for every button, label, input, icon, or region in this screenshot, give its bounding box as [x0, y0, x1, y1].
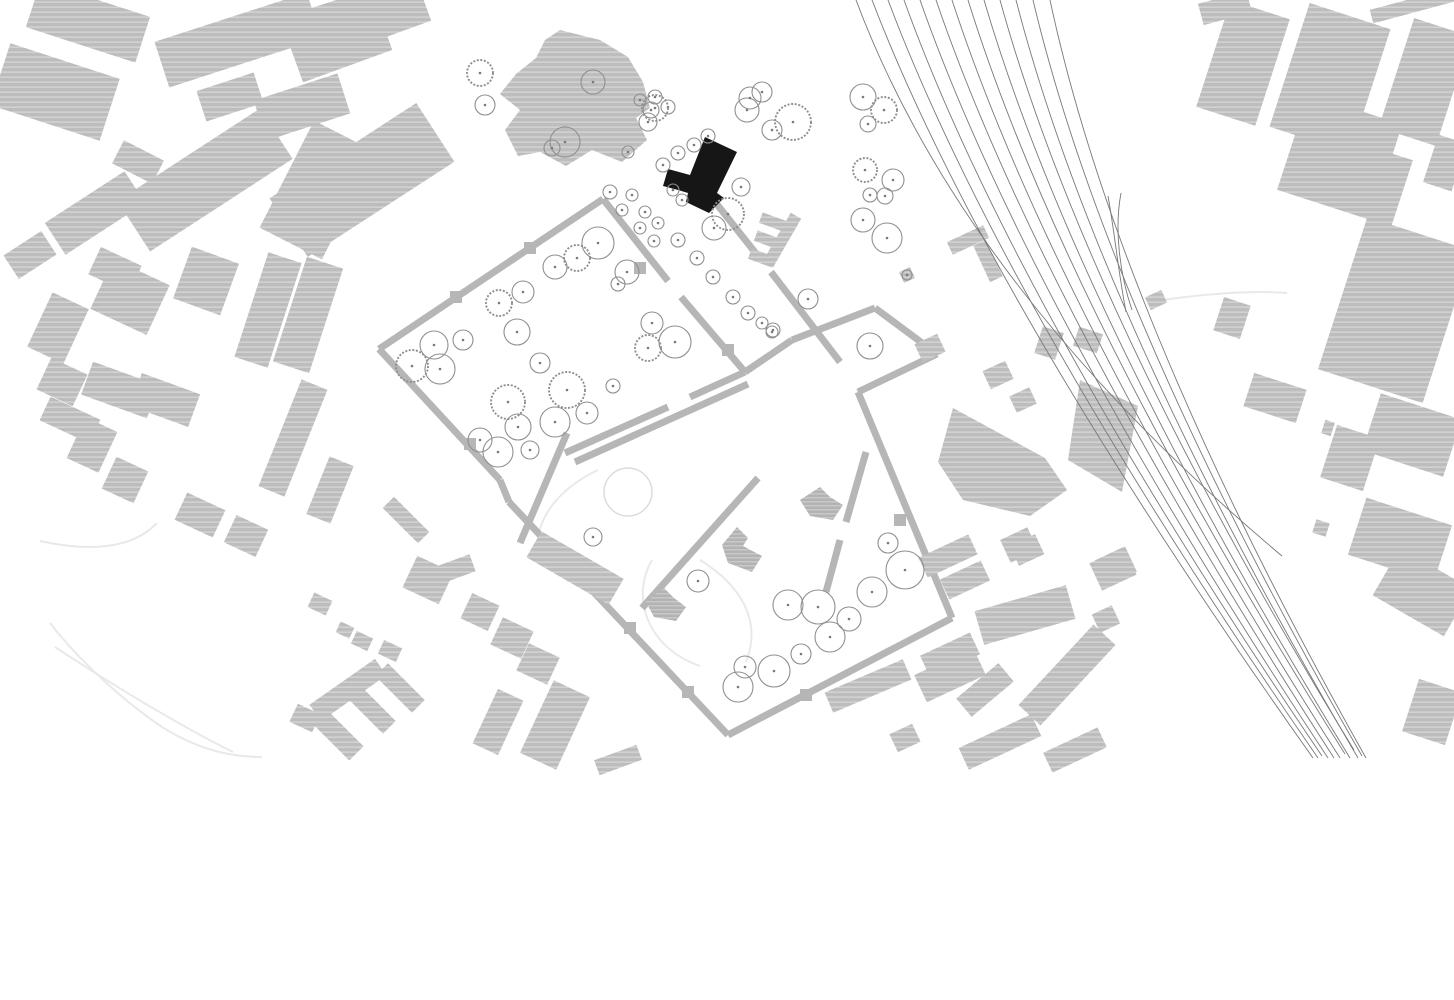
tree-trunk-dot	[507, 401, 510, 404]
tree-trunk-dot	[740, 186, 743, 189]
tree-trunk-dot	[586, 412, 589, 415]
tree-trunk-dot	[817, 606, 820, 609]
tree-trunk-dot	[862, 96, 865, 99]
wall-buttress	[894, 514, 906, 526]
tree-trunk-dot	[522, 291, 525, 294]
tree-trunk-dot	[411, 365, 414, 368]
tree-trunk-dot	[884, 195, 887, 198]
tree-trunk-dot	[609, 191, 612, 194]
tree-trunk-dot	[887, 542, 890, 545]
wall-buttress	[624, 622, 636, 634]
tree-trunk-dot	[554, 421, 557, 424]
tree-trunk-dot	[697, 580, 700, 583]
tree-trunk-dot	[592, 81, 595, 84]
tree-trunk-dot	[707, 135, 710, 138]
tree-trunk-dot	[479, 439, 482, 442]
tree-trunk-dot	[773, 670, 776, 673]
tree-trunk-dot	[654, 96, 657, 99]
tree-trunk-dot	[869, 345, 872, 348]
tree-trunk-dot	[864, 169, 867, 172]
tree-trunk-dot	[484, 104, 487, 107]
tree-trunk-dot	[677, 239, 680, 242]
tree-trunk-dot	[681, 199, 684, 202]
tree-trunk-dot	[529, 449, 532, 452]
tree-trunk-dot	[551, 147, 554, 150]
wall-buttress	[464, 438, 476, 450]
tree-trunk-dot	[564, 141, 567, 144]
tree-trunk-dot	[761, 322, 764, 325]
tree-trunk-dot	[497, 451, 500, 454]
tree-trunk-dot	[517, 426, 520, 429]
tree-trunk-dot	[771, 129, 774, 132]
site-plan-page	[0, 0, 1454, 1000]
tree-trunk-dot	[883, 109, 886, 112]
tree-trunk-dot	[612, 385, 615, 388]
tree-trunk-dot	[749, 97, 752, 100]
tree-trunk-dot	[906, 274, 909, 277]
tree-trunk-dot	[787, 604, 790, 607]
tree-trunk-dot	[871, 591, 874, 594]
tree-trunk-dot	[807, 298, 810, 301]
tree-trunk-dot	[479, 72, 482, 75]
tree-trunk-dot	[626, 271, 629, 274]
tree-trunk-dot	[693, 144, 696, 147]
tree-trunk-dot	[627, 151, 630, 154]
tree-trunk-dot	[433, 344, 436, 347]
tree-trunk-dot	[498, 302, 501, 305]
tree-trunk-dot	[647, 347, 650, 350]
tree-trunk-dot	[674, 341, 677, 344]
tree-trunk-dot	[621, 209, 624, 212]
tree-trunk-dot	[617, 283, 620, 286]
tree-trunk-dot	[727, 213, 730, 216]
wall-buttress	[800, 689, 812, 701]
wall-buttress	[524, 242, 536, 254]
tree-trunk-dot	[597, 242, 600, 245]
wall-buttress	[682, 686, 694, 698]
tree-trunk-dot	[644, 211, 647, 214]
site-plan-canvas	[0, 0, 1454, 1000]
tree-trunk-dot	[869, 194, 872, 197]
tree-trunk-dot	[672, 189, 675, 192]
tree-trunk-dot	[772, 329, 775, 332]
tree-trunk-dot	[744, 666, 747, 669]
wall-buttress	[450, 291, 462, 303]
tree-trunk-dot	[886, 237, 889, 240]
tree-trunk-dot	[516, 331, 519, 334]
tree-trunk-dot	[647, 121, 650, 124]
tree-trunk-dot	[539, 362, 542, 365]
tree-trunk-dot	[761, 91, 764, 94]
tree-trunk-dot	[462, 339, 465, 342]
tree-trunk-dot	[862, 219, 865, 222]
tree-trunk-dot	[747, 312, 750, 315]
wall-buttress	[722, 344, 734, 356]
tree-trunk-dot	[732, 296, 735, 299]
tree-trunk-dot	[713, 227, 716, 230]
tree-trunk-dot	[848, 618, 851, 621]
tree-trunk-dot	[904, 569, 907, 572]
tree-trunk-dot	[792, 121, 795, 124]
tree-trunk-dot	[654, 107, 657, 110]
tree-trunk-dot	[631, 194, 634, 197]
tree-trunk-dot	[566, 389, 569, 392]
tree-trunk-dot	[712, 276, 715, 279]
tree-trunk-dot	[696, 257, 699, 260]
tree-trunk-dot	[639, 99, 642, 102]
tree-trunk-dot	[662, 164, 665, 167]
tree-trunk-dot	[650, 109, 653, 112]
tree-trunk-dot	[576, 257, 579, 260]
tree-trunk-dot	[829, 636, 832, 639]
tree-trunk-dot	[800, 653, 803, 656]
tree-trunk-dot	[737, 686, 740, 689]
tree-trunk-dot	[677, 152, 680, 155]
tree-trunk-dot	[592, 536, 595, 539]
tree-trunk-dot	[892, 179, 895, 182]
tree-trunk-dot	[639, 227, 642, 230]
tree-trunk-dot	[651, 322, 654, 325]
tree-trunk-dot	[439, 368, 442, 371]
tree-trunk-dot	[867, 123, 870, 126]
tree-trunk-dot	[657, 222, 660, 225]
tree-trunk-dot	[653, 240, 656, 243]
tree-trunk-dot	[554, 266, 557, 269]
